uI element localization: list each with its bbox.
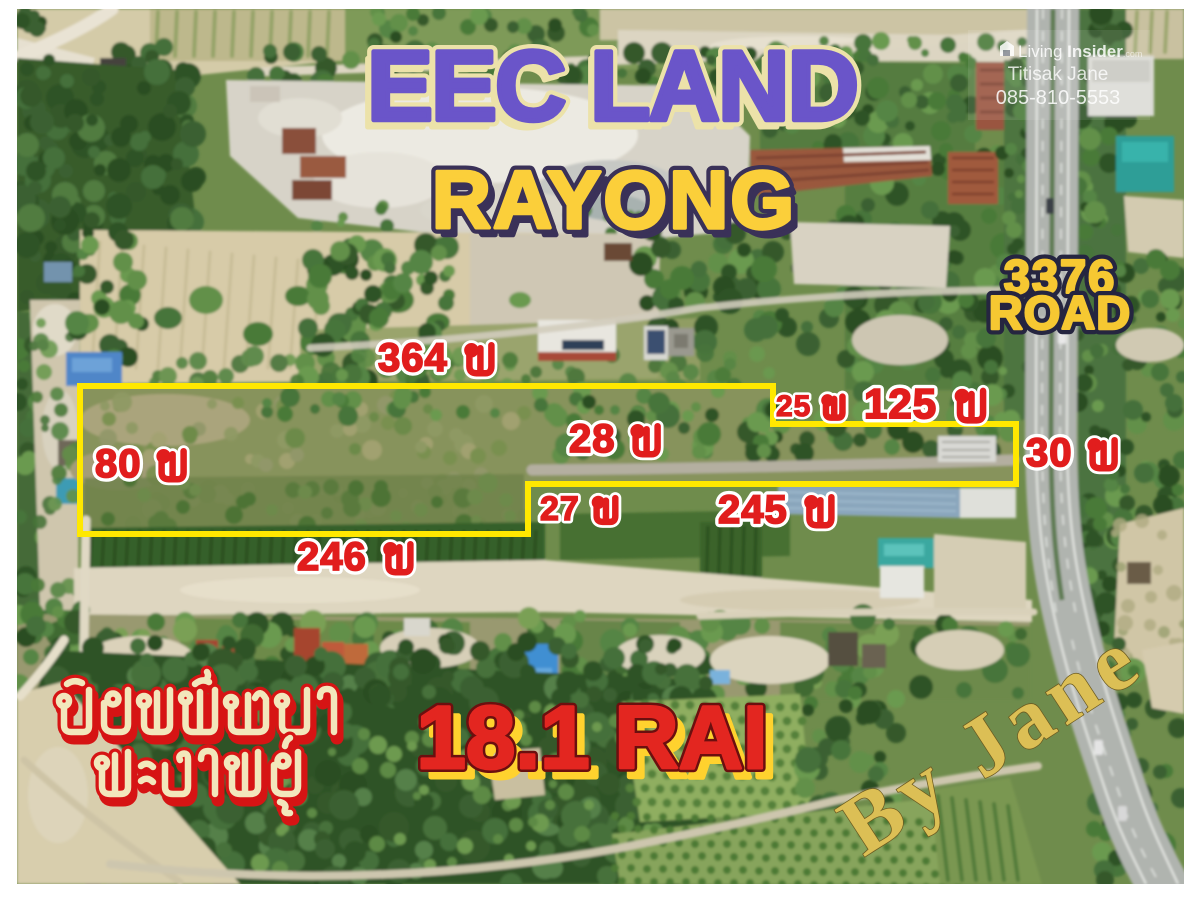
svg-text:28: 28 [569,417,616,461]
svg-text:30: 30 [1026,431,1073,475]
svg-text:EEC LAND: EEC LAND [367,30,857,141]
svg-text:RAYONG: RAYONG [432,155,796,246]
svg-text:125: 125 [864,380,937,427]
svg-text:27: 27 [540,490,580,528]
svg-text:ROAD: ROAD [989,286,1131,339]
svg-text:364: 364 [378,336,448,380]
svg-text:Titisak Jane: Titisak Jane [1008,64,1109,85]
svg-text:25: 25 [776,390,811,423]
svg-text:245: 245 [718,488,788,532]
svg-text:80: 80 [95,442,142,486]
svg-text:085-810-5553: 085-810-5553 [996,87,1121,109]
svg-text:18.1 RAI: 18.1 RAI [416,687,767,787]
svg-text:246: 246 [297,535,367,579]
